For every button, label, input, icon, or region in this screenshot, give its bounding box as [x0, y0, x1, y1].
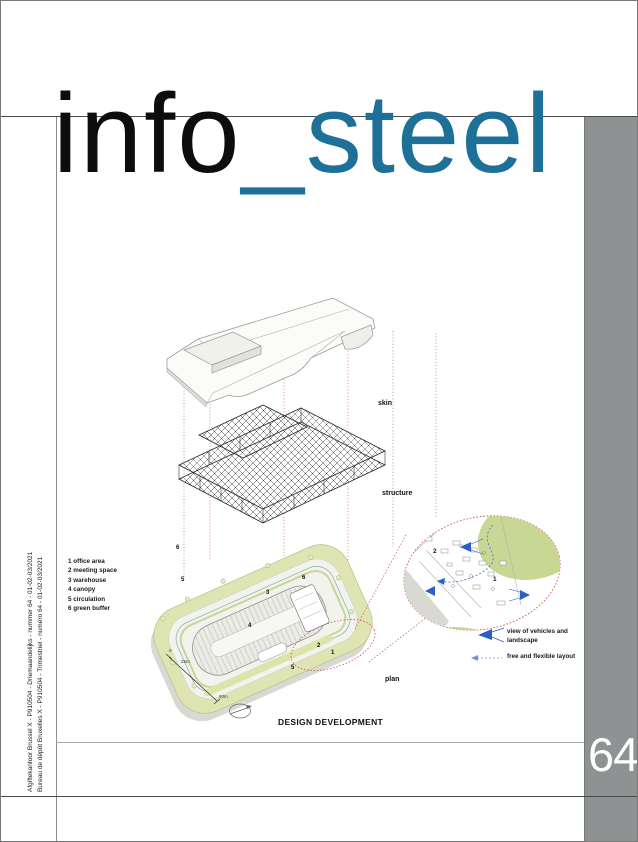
plan-legend: 1 office area 2 meeting space 3 warehous…	[68, 557, 117, 613]
annotation-icons	[471, 628, 504, 661]
structure-drawing	[179, 405, 385, 523]
scale-label-start: 0	[169, 648, 172, 653]
masthead-word-info: info	[53, 71, 242, 196]
detail-marker: 1	[493, 576, 497, 583]
footer-rule	[1, 796, 638, 797]
detail-marker: 2	[433, 548, 437, 555]
skin-drawing	[167, 298, 375, 407]
legend-item: 3 warehouse	[68, 576, 117, 585]
masthead-title: info_steel	[53, 78, 552, 190]
right-gray-strip: 64	[584, 116, 638, 842]
plan-marker: 1	[331, 650, 334, 656]
plan-marker: 6	[176, 545, 179, 551]
diagram-caption: DESIGN DEVELOPMENT	[278, 717, 383, 727]
plan-marker: 6	[302, 575, 305, 581]
plan-marker: 2	[317, 643, 320, 649]
scale-label-end: 50m	[219, 694, 228, 699]
legend-item: 2 meeting space	[68, 566, 117, 575]
plan-marker: 4	[248, 623, 251, 629]
magazine-cover: info_steel 64 Afgiftekantoor Brussel X -…	[0, 0, 638, 842]
issue-number: 64	[588, 731, 638, 778]
scale-label-mid: 25m	[181, 659, 190, 664]
masthead-word-steel: _steel	[242, 71, 553, 196]
legend-item: 5 circulation	[68, 595, 117, 604]
annotation-layout: free and flexible layout	[507, 653, 597, 662]
label-plan: plan	[385, 676, 399, 683]
label-skin: skin	[378, 400, 392, 407]
plan-drawing	[136, 529, 384, 730]
label-structure: structure	[382, 490, 412, 497]
plan-marker: 5	[181, 577, 184, 583]
legend-item: 6 green buffer	[68, 604, 117, 613]
legend-item: 1 office area	[68, 557, 117, 566]
plan-marker: 5	[291, 665, 294, 671]
annotation-view: view of vehicles and landscape	[507, 628, 569, 645]
legend-item: 4 canopy	[68, 585, 117, 594]
plan-marker: 3	[266, 590, 269, 596]
